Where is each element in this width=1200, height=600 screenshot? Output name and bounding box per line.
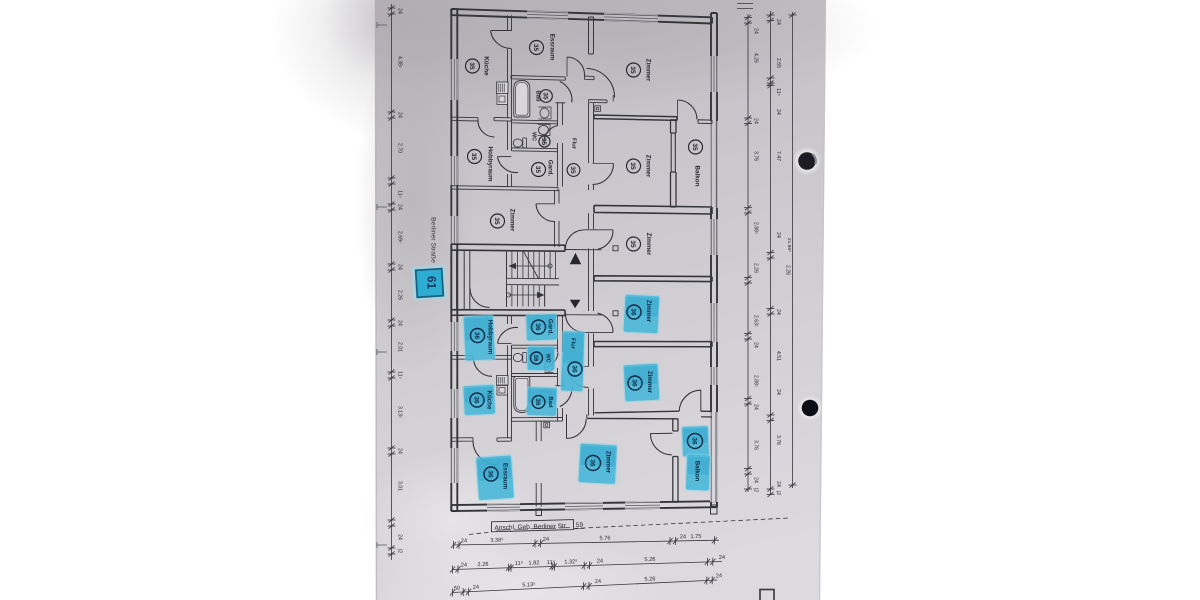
svg-text:24: 24 [753,477,759,483]
svg-text:|2: |2 [753,488,759,492]
svg-text:7.47: 7.47 [775,151,781,161]
svg-text:2.88⁵: 2.88⁵ [753,375,759,387]
svg-text:Zimmer: Zimmer [509,209,516,232]
svg-text:35: 35 [532,44,539,52]
svg-text:Zimmer: Zimmer [646,371,653,394]
svg-text:35: 35 [468,62,475,70]
svg-text:Bad: Bad [547,397,553,408]
svg-text:4.38⁵: 4.38⁵ [396,56,402,68]
svg-text:Hobbyraum: Hobbyraum [487,147,494,182]
svg-text:Zimmer: Zimmer [645,155,652,178]
svg-text:3.13⁵: 3.13⁵ [396,406,402,418]
svg-text:24: 24 [775,389,781,395]
svg-text:24: 24 [753,342,759,348]
svg-text:2.26: 2.26 [753,263,759,273]
svg-text:24: 24 [595,579,602,585]
svg-text:35: 35 [569,166,576,174]
svg-text:24: 24 [396,320,402,326]
svg-text:Bad: Bad [535,91,541,102]
svg-text:24: 24 [396,534,402,540]
svg-text:Zimmer: Zimmer [605,451,612,474]
svg-text:WC: WC [531,132,537,141]
svg-text:24: 24 [775,481,781,487]
svg-text:24: 24 [753,28,759,34]
svg-text:24: 24 [775,109,781,115]
svg-text:35: 35 [540,138,547,146]
svg-text:11⁵: 11⁵ [775,88,781,95]
svg-text:Gard.: Gard. [547,319,554,335]
svg-text:35: 35 [629,66,636,74]
svg-text:24: 24 [396,204,402,210]
svg-text:2.01: 2.01 [396,342,402,352]
svg-text:3.38⁵: 3.38⁵ [490,536,503,543]
svg-text:Hobbyraum: Hobbyraum [487,320,494,355]
svg-text:24: 24 [396,8,402,14]
svg-text:24: 24 [396,264,402,270]
svg-text:35: 35 [493,217,500,225]
svg-text:2.55: 2.55 [775,58,781,68]
svg-text:24: 24 [461,562,467,568]
svg-text:Zimmer: Zimmer [645,233,652,256]
svg-text:2.69⁵: 2.69⁵ [396,231,402,243]
svg-text:11⁵: 11⁵ [547,559,555,566]
svg-text:5.76: 5.76 [599,536,610,542]
svg-text:36: 36 [487,470,494,478]
svg-text:36: 36 [473,332,480,340]
svg-text:Flur: Flur [571,138,577,150]
svg-text:35: 35 [470,153,477,161]
svg-text:Gard.: Gard. [547,160,554,177]
svg-text:Zimmer: Zimmer [645,300,652,323]
svg-text:24: 24 [753,118,759,124]
svg-text:24: 24 [396,448,402,454]
svg-text:|2: |2 [775,491,781,495]
svg-text:1.82: 1.82 [528,560,539,566]
svg-text:24: 24 [775,309,781,315]
svg-text:1.32⁵: 1.32⁵ [564,558,577,565]
svg-text:35: 35 [629,240,636,248]
svg-text:3.76: 3.76 [775,435,781,445]
svg-text:24: 24 [680,534,686,540]
svg-text:21.86⁵: 21.86⁵ [786,238,792,252]
svg-text:Küche: Küche [486,391,493,410]
svg-text:35: 35 [534,166,541,174]
svg-text:3.76: 3.76 [753,151,759,161]
svg-text:Balkon: Balkon [694,461,701,482]
svg-text:24: 24 [597,558,603,564]
svg-text:Küche: Küche [483,56,490,76]
svg-text:5.26: 5.26 [644,576,655,583]
svg-text:1.75: 1.75 [690,534,701,540]
svg-text:36: 36 [630,308,637,316]
svg-text:36: 36 [691,437,698,445]
svg-text:11⁵: 11⁵ [396,190,402,197]
svg-text:Zimmer: Zimmer [645,59,652,82]
svg-text:36: 36 [534,323,541,331]
svg-text:2.88⁵: 2.88⁵ [753,222,759,234]
svg-text:35: 35 [629,162,636,170]
svg-text:36: 36 [473,396,480,404]
svg-text:36: 36 [589,459,596,467]
svg-text:3.01: 3.01 [396,481,402,491]
svg-text:24: 24 [753,404,759,410]
svg-text:Essraum: Essraum [502,463,509,490]
svg-text:Essraum: Essraum [549,34,556,61]
svg-text:50: 50 [454,586,461,592]
svg-text:2.26: 2.26 [477,562,488,568]
svg-text:24: 24 [716,573,723,579]
svg-text:61: 61 [425,276,439,290]
svg-text:24: 24 [473,585,480,591]
svg-text:Balkon: Balkon [694,166,701,187]
svg-text:2.70: 2.70 [396,143,402,153]
svg-text:11⁵: 11⁵ [396,371,402,378]
svg-text:24: 24 [461,538,467,544]
svg-text:35: 35 [691,143,698,151]
svg-text:24: 24 [719,555,725,561]
svg-text:24: 24 [396,112,402,118]
svg-text:2.26: 2.26 [785,265,791,275]
svg-text:36: 36 [571,365,578,373]
svg-text:24: 24 [775,232,781,238]
svg-text:24: 24 [543,537,549,543]
svg-text:Flur: Flur [570,338,576,350]
svg-text:5.13⁵: 5.13⁵ [522,581,536,589]
svg-text:3.76: 3.76 [753,440,759,450]
svg-text:4.26: 4.26 [753,53,759,63]
svg-text:Berliner Straße: Berliner Straße [430,217,437,263]
svg-text:2.26: 2.26 [396,290,402,300]
svg-text:2.63⁵: 2.63⁵ [753,315,759,327]
svg-text:5.26: 5.26 [644,557,655,563]
svg-text:36: 36 [534,398,541,406]
svg-text:36: 36 [532,354,539,362]
svg-text:11⁵: 11⁵ [515,560,523,567]
svg-text:36: 36 [631,379,638,387]
svg-text:WC: WC [545,354,551,363]
svg-text:|2: |2 [396,549,402,553]
svg-text:35: 35 [542,92,549,100]
svg-text:4.51: 4.51 [775,351,781,361]
svg-text:24: 24 [775,19,781,25]
